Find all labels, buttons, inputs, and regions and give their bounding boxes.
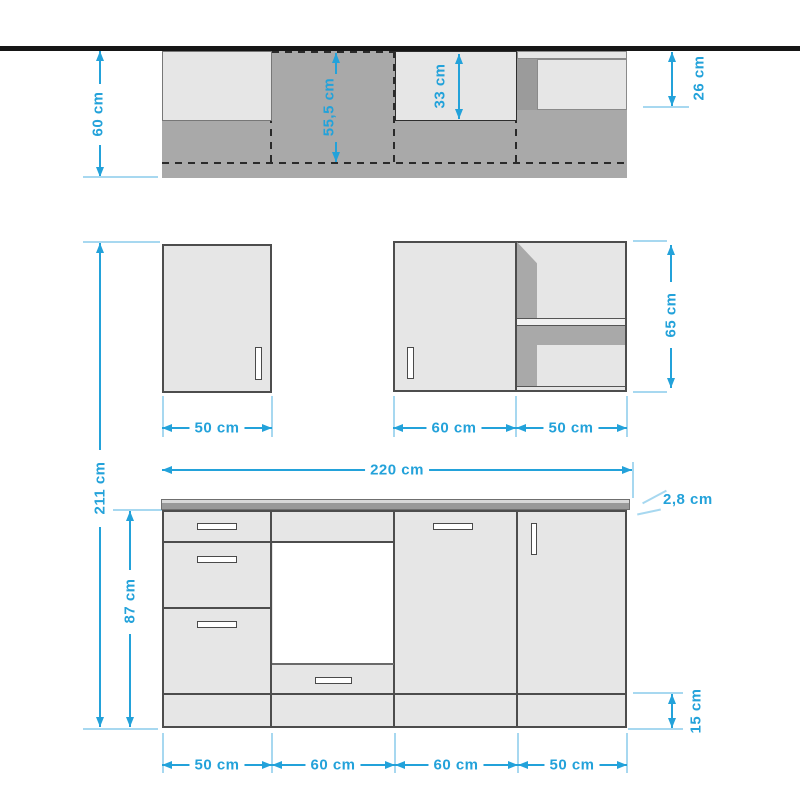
plinth-line: [162, 693, 627, 695]
open-shelf-board: [517, 318, 625, 326]
arrow-right-icon: [385, 761, 395, 769]
dim-label: 50 cm: [189, 420, 244, 437]
arrow-left-icon: [162, 466, 172, 474]
arrow-left-icon: [516, 424, 526, 432]
arrow-right-icon: [262, 424, 272, 432]
dim-label: 60 cm: [90, 91, 107, 136]
arrow-left-icon: [395, 761, 405, 769]
appliance-gap: [273, 543, 393, 663]
wall-cabinet-mid-handle: [407, 347, 414, 379]
plan-upper-right-side-band: [517, 59, 537, 110]
dim-label: 87 cm: [122, 578, 139, 623]
dim-label: 15 cm: [688, 688, 705, 733]
arrow-up-icon: [96, 51, 104, 61]
dim-label: 60 cm: [428, 757, 483, 774]
arrow-down-icon: [455, 109, 463, 119]
wall-cabinet-left-handle: [255, 347, 262, 380]
arrow-right-icon: [508, 761, 518, 769]
arrow-down-icon: [667, 378, 675, 388]
arrow-left-icon: [393, 424, 403, 432]
arrow-down-icon: [126, 717, 134, 727]
open-shelf-bottom-line: [517, 386, 625, 387]
dim-label: 50 cm: [543, 420, 598, 437]
kitchen-dimension-diagram: 60 cm 55,5 cm 33 cm 26 cm: [0, 0, 800, 800]
plan-upper-cabinet-left: [162, 51, 272, 121]
wall-cabinet-group-right: [393, 241, 627, 392]
arrow-up-icon: [668, 694, 676, 704]
plan-upper-cabinet-right: [537, 59, 627, 110]
arrow-up-icon: [96, 243, 104, 253]
dim-label: 26 cm: [691, 55, 708, 100]
arrow-up-icon: [332, 53, 340, 63]
dim-label: 2,8 cm: [663, 491, 713, 508]
dim-label: 33 cm: [432, 63, 449, 108]
arrow-right-icon: [262, 761, 272, 769]
arrow-up-icon: [667, 245, 675, 255]
arrow-down-icon: [96, 717, 104, 727]
dim-label: 211 cm: [92, 461, 109, 514]
drawer-divider-2: [162, 607, 272, 609]
arrow-down-icon: [332, 152, 340, 162]
arrow-down-icon: [668, 718, 676, 728]
base-divider-3: [516, 510, 518, 728]
worktop: [161, 499, 630, 510]
arrow-left-icon: [162, 424, 172, 432]
arrow-right-icon: [617, 761, 627, 769]
dim-label: 60 cm: [305, 757, 360, 774]
drawer-handle-2: [197, 556, 237, 563]
arrow-up-icon: [668, 52, 676, 62]
plan-upper-right-top-strip: [517, 51, 627, 59]
oven-drawer-handle: [315, 677, 352, 684]
arrow-right-icon: [617, 424, 627, 432]
gap-bottom-line: [272, 663, 394, 665]
dim-label: 60 cm: [426, 420, 481, 437]
arrow-right-icon: [506, 424, 516, 432]
dim-label: 50 cm: [544, 757, 599, 774]
arrow-right-icon: [622, 466, 632, 474]
drawer-handle-1: [197, 523, 237, 530]
arrow-left-icon: [518, 761, 528, 769]
base-door-handle-right: [531, 523, 537, 555]
arrow-left-icon: [272, 761, 282, 769]
drawer-handle-3: [197, 621, 237, 628]
open-shelf-side-bottom: [517, 345, 537, 386]
dim-label: 65 cm: [663, 292, 680, 337]
base-door-handle-mid: [433, 523, 473, 530]
arrow-left-icon: [162, 761, 172, 769]
dim-label: 220 cm: [365, 462, 429, 479]
arrow-up-icon: [126, 511, 134, 521]
arrow-up-icon: [455, 54, 463, 64]
arrow-down-icon: [668, 96, 676, 106]
dim-label: 50 cm: [189, 757, 244, 774]
dim-label: 55,5 cm: [321, 78, 338, 137]
open-shelf-underside: [517, 326, 625, 345]
